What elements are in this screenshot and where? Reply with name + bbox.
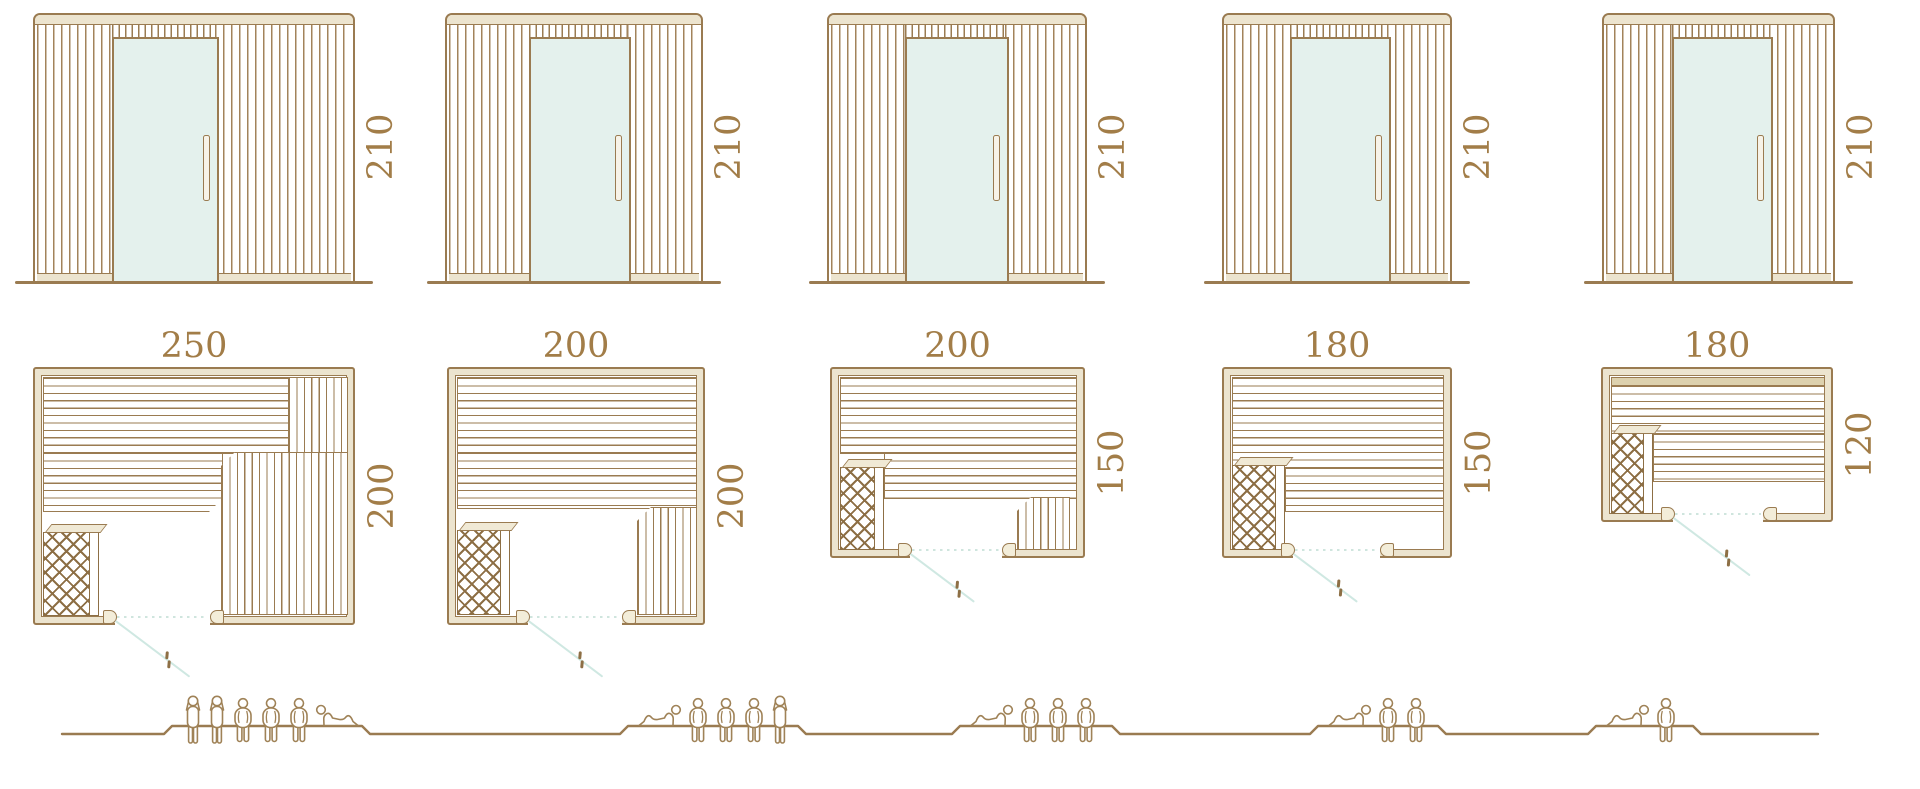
sauna-2-floor-plan (447, 367, 705, 625)
door-swing-line (1673, 517, 1751, 577)
door-transom-slats (905, 24, 1005, 38)
person-sitting-icon (1022, 699, 1038, 742)
person-lying-icon (971, 706, 1012, 726)
door-swing-line (910, 553, 975, 603)
door-handle-icon (1337, 579, 1341, 587)
door-handle-icon (580, 660, 584, 668)
threshold-dotted-line (912, 549, 1000, 551)
capacity-group-3 (971, 699, 1094, 742)
height-label: 210 (1841, 114, 1881, 181)
plan-depth-label: 120 (1840, 411, 1880, 478)
glass-door (1290, 37, 1391, 283)
wood-slat-wall-left (1606, 24, 1672, 274)
sauna-5-elevation (1602, 13, 1835, 283)
person-sitting-icon (235, 699, 251, 742)
glass-door (905, 37, 1009, 283)
door-handle (1757, 135, 1764, 201)
plan-outer-wall (1222, 367, 1452, 558)
door-handle (615, 135, 622, 201)
elevation-frame (827, 13, 1087, 283)
door-handle-icon (167, 660, 171, 668)
plan-outer-wall (33, 367, 355, 625)
wood-slat-wall-left (831, 24, 905, 274)
sauna-1-elevation (33, 13, 355, 283)
door-handle (1375, 135, 1382, 201)
wood-slat-wall-right (1769, 24, 1831, 274)
sauna-2-elevation (445, 13, 703, 283)
person-sitting-icon (263, 699, 279, 742)
person-sitting-icon (1408, 699, 1424, 742)
door-handle (203, 135, 210, 201)
sauna-dimension-diagram: 2102502002102002002102001502101801502101… (0, 0, 1920, 789)
capacity-ground-line (62, 726, 1818, 734)
threshold-dotted-line (1295, 549, 1378, 551)
capacity-group-2 (639, 696, 787, 743)
wood-slat-wall-left (449, 24, 529, 274)
height-label: 210 (709, 114, 749, 181)
elevation-frame (445, 13, 703, 283)
door-transom-slats (1672, 24, 1769, 38)
wood-slat-wall-left (1226, 24, 1290, 274)
door-swing-line (115, 620, 191, 678)
ground-line (809, 281, 1105, 284)
plan-depth-label: 150 (1092, 429, 1132, 496)
wood-slat-wall-right (1387, 24, 1448, 274)
person-standing-icon (774, 696, 787, 743)
door-handle-icon (1727, 558, 1731, 566)
ground-line (1584, 281, 1853, 284)
door-transom-slats (1290, 24, 1387, 38)
person-sitting-icon (690, 699, 706, 742)
wall-end-cap-right (622, 610, 636, 624)
ground-line (1204, 281, 1470, 284)
person-sitting-icon (1658, 699, 1674, 742)
person-sitting-icon (291, 699, 307, 742)
plan-depth-label: 200 (362, 463, 402, 530)
door-swing-line (528, 620, 604, 678)
capacity-group-5 (1607, 699, 1674, 742)
sauna-5-floor-plan (1601, 367, 1833, 522)
door-handle-icon (578, 651, 582, 659)
capacity-group-1 (187, 696, 359, 743)
door-transom-slats (529, 24, 627, 38)
person-lying-icon (317, 706, 358, 726)
plan-outer-wall (830, 367, 1085, 558)
plan-width-label: 200 (543, 326, 610, 366)
elevation-frame (1602, 13, 1835, 283)
sauna-1-floor-plan (33, 367, 355, 625)
plan-width-label: 180 (1304, 326, 1371, 366)
capacity-group-4 (1329, 699, 1424, 742)
wall-end-cap-right (210, 610, 224, 624)
height-label: 210 (1458, 114, 1498, 181)
door-handle-icon (1339, 588, 1343, 596)
person-sitting-icon (746, 699, 762, 742)
height-label: 210 (1093, 114, 1133, 181)
wall-end-cap-right (1763, 507, 1777, 521)
ground-line (15, 281, 373, 284)
threshold-dotted-line (117, 616, 208, 618)
glass-door (1672, 37, 1773, 283)
plan-depth-label: 150 (1459, 429, 1499, 496)
wood-slat-wall-left (37, 24, 112, 274)
door-handle (993, 135, 1000, 201)
sauna-3-floor-plan (830, 367, 1085, 558)
plan-width-label: 250 (161, 326, 228, 366)
door-handle-icon (956, 580, 960, 588)
person-sitting-icon (718, 699, 734, 742)
person-sitting-icon (1050, 699, 1066, 742)
plan-outer-wall (1601, 367, 1833, 522)
height-label: 210 (361, 114, 401, 181)
wood-slat-wall-right (215, 24, 351, 274)
person-lying-icon (1329, 706, 1370, 726)
sauna-4-floor-plan (1222, 367, 1452, 558)
plan-depth-label: 200 (712, 463, 752, 530)
door-transom-slats (112, 24, 215, 38)
person-lying-icon (639, 706, 680, 726)
capacity-strip (0, 688, 1920, 789)
person-lying-icon (1607, 706, 1648, 726)
person-standing-icon (187, 696, 200, 743)
door-handle-icon (165, 651, 169, 659)
wood-slat-wall-right (627, 24, 699, 274)
threshold-dotted-line (1675, 513, 1761, 515)
wood-slat-wall-right (1005, 24, 1083, 274)
person-sitting-icon (1380, 699, 1396, 742)
capacity-figures-svg (0, 688, 1920, 789)
door-swing-line (1293, 553, 1358, 603)
plan-width-label: 180 (1684, 326, 1751, 366)
glass-door (112, 37, 219, 283)
door-handle-icon (1725, 549, 1729, 557)
ground-line (427, 281, 721, 284)
glass-door (529, 37, 631, 283)
person-standing-icon (211, 696, 224, 743)
wall-end-cap-right (1380, 543, 1394, 557)
sauna-4-elevation (1222, 13, 1452, 283)
elevation-frame (33, 13, 355, 283)
sauna-3-elevation (827, 13, 1087, 283)
plan-outer-wall (447, 367, 705, 625)
elevation-frame (1222, 13, 1452, 283)
door-handle-icon (958, 589, 962, 597)
threshold-dotted-line (530, 616, 620, 618)
wall-end-cap-right (1002, 543, 1016, 557)
plan-width-label: 200 (924, 326, 991, 366)
person-sitting-icon (1078, 699, 1094, 742)
